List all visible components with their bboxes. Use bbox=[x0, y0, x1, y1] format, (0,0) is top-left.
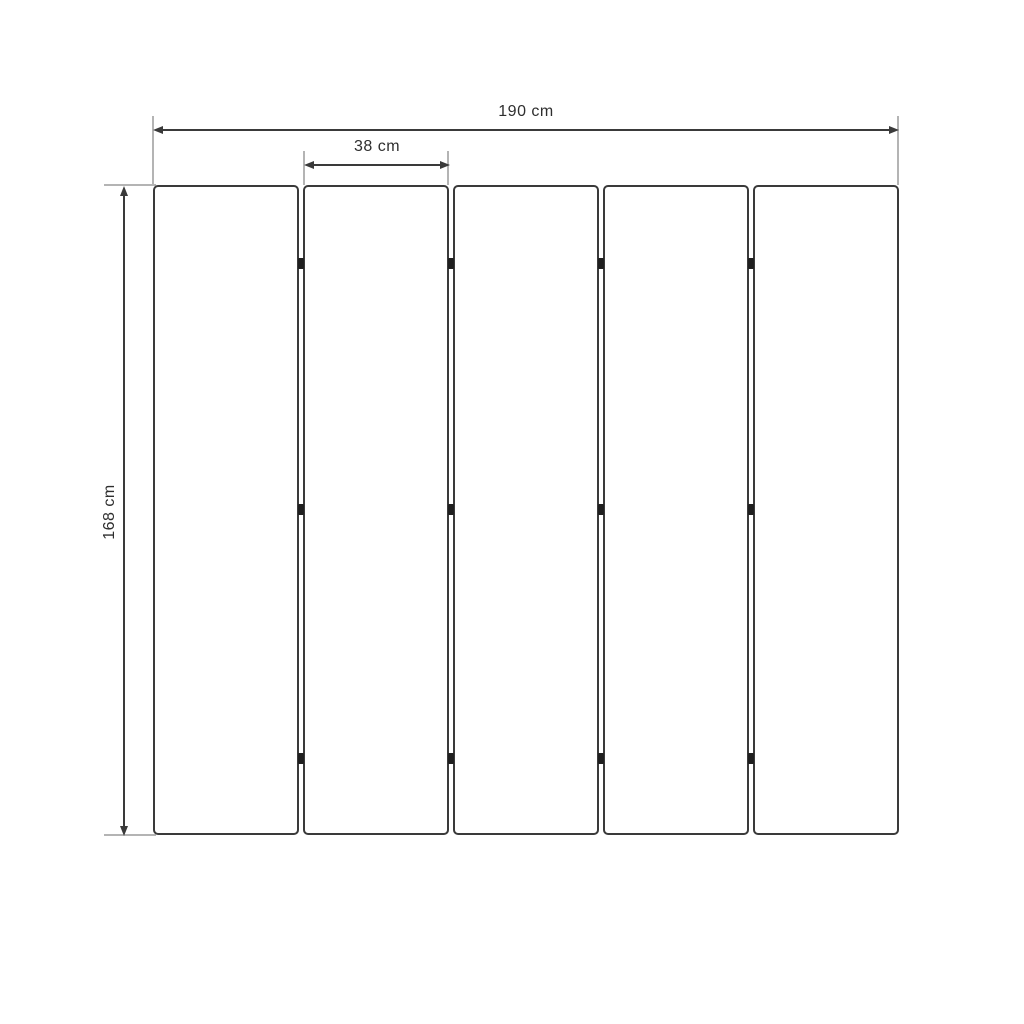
hinge-mark bbox=[598, 258, 604, 269]
hinge-mark bbox=[298, 258, 304, 269]
arrowhead-down-icon bbox=[120, 826, 128, 836]
dimension-line-panel-width bbox=[312, 164, 442, 166]
dimension-line-total-height bbox=[123, 194, 125, 828]
arrowhead-right-icon bbox=[440, 161, 450, 169]
panel bbox=[303, 185, 449, 835]
arrowhead-up-icon bbox=[120, 186, 128, 196]
hinge-mark bbox=[748, 753, 754, 764]
total-height-label: 168 cm bbox=[101, 442, 119, 582]
extension-line-height-top bbox=[104, 184, 156, 186]
hinge-mark bbox=[598, 504, 604, 515]
hinge-mark bbox=[598, 753, 604, 764]
hinge-mark bbox=[448, 504, 454, 515]
hinge-mark bbox=[298, 504, 304, 515]
hinge-mark bbox=[298, 753, 304, 764]
extension-line-height-bottom bbox=[104, 834, 156, 836]
panel bbox=[603, 185, 749, 835]
panel-width-label: 38 cm bbox=[307, 138, 447, 156]
hinge-mark bbox=[748, 258, 754, 269]
arrowhead-left-icon bbox=[304, 161, 314, 169]
panel bbox=[753, 185, 899, 835]
arrowhead-right-icon bbox=[889, 126, 899, 134]
hinge-mark bbox=[448, 753, 454, 764]
total-width-label: 190 cm bbox=[456, 103, 596, 121]
panel bbox=[153, 185, 299, 835]
arrowhead-left-icon bbox=[153, 126, 163, 134]
hinge-mark bbox=[448, 258, 454, 269]
hinge-mark bbox=[748, 504, 754, 515]
dimension-line-total-width bbox=[161, 129, 891, 131]
diagram-canvas: 190 cm 38 cm 168 cm bbox=[0, 0, 1024, 1024]
panel bbox=[453, 185, 599, 835]
